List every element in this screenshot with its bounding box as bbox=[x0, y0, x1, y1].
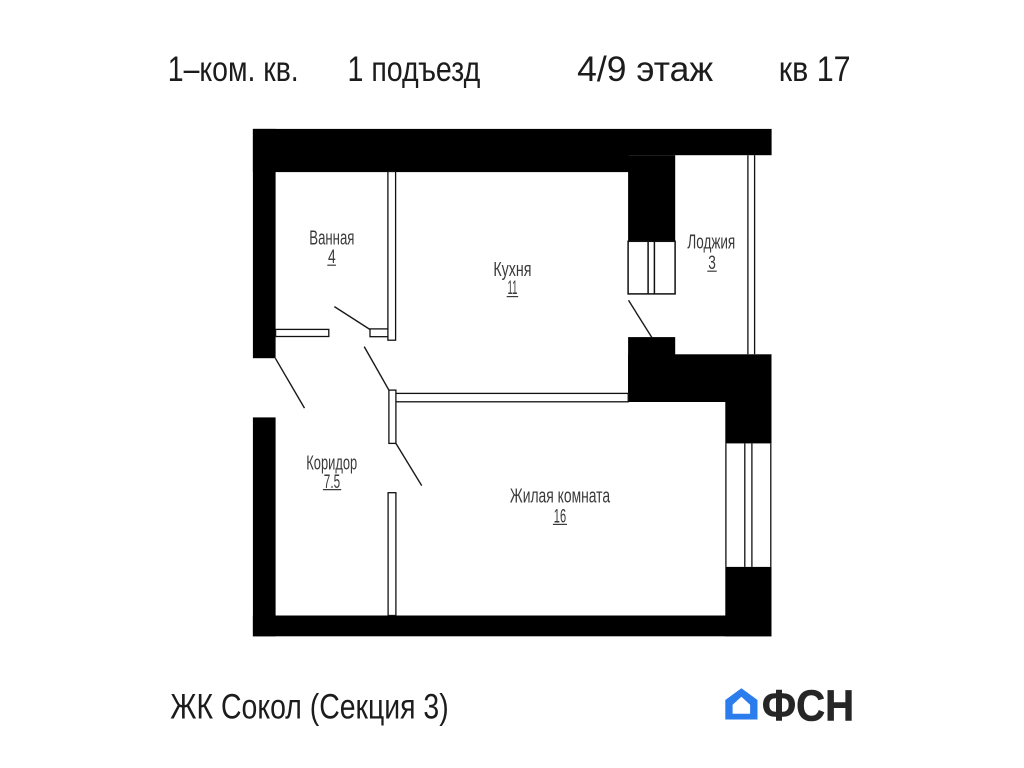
svg-text:4/9 этаж: 4/9 этаж bbox=[577, 50, 713, 89]
svg-text:Ванная: Ванная bbox=[309, 227, 354, 249]
svg-text:кв 17: кв 17 bbox=[779, 50, 851, 89]
svg-text:1 подъезд: 1 подъезд bbox=[348, 50, 481, 89]
svg-text:ЖК Сокол (Секция 3): ЖК Сокол (Секция 3) bbox=[170, 688, 448, 727]
svg-text:ФСН: ФСН bbox=[762, 681, 854, 730]
svg-text:11: 11 bbox=[508, 278, 518, 299]
svg-text:Лоджия: Лоджия bbox=[687, 231, 735, 253]
svg-text:1–ком. кв.: 1–ком. кв. bbox=[168, 50, 299, 89]
svg-text:Жилая комната: Жилая комната bbox=[510, 485, 611, 507]
